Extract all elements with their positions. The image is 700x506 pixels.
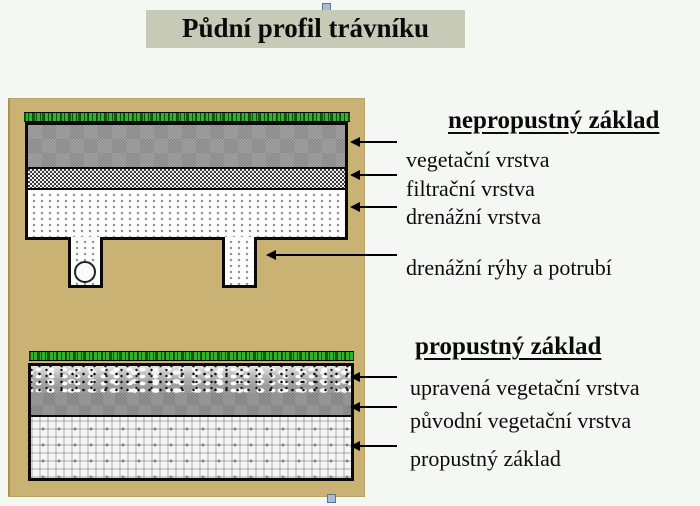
heading-permeable-base: propustný základ: [415, 333, 601, 361]
drainage-trench-right: [222, 237, 257, 288]
label-filtration-layer: filtrační vrstva: [406, 177, 535, 200]
grass-strip-bottom-diagram: [29, 351, 354, 361]
soil-stack-impermeable: [25, 122, 348, 240]
arrow-to-drainage-trench: [268, 254, 397, 256]
page-title: Půdní profil trávníku: [146, 10, 465, 48]
label-drainage-layer: drenážní vrstva: [406, 205, 541, 228]
arrow-to-permeable-base: [352, 445, 397, 447]
drainage-pipe-circle: [74, 261, 96, 283]
drainage-layer: [28, 190, 345, 237]
label-drainage-trenches-pipes: drenážní rýhy a potrubí: [406, 256, 612, 279]
slide-canvas: Půdní profil trávníku nepropustný základ…: [0, 0, 700, 506]
amended-vegetation-layer: [31, 366, 351, 393]
permeable-base-layer: [31, 417, 351, 478]
grass-strip-top-diagram: [24, 112, 350, 122]
selection-handle-bottom[interactable]: [327, 494, 336, 503]
arrow-to-filtration-layer: [352, 174, 397, 176]
original-vegetation-layer: [31, 393, 351, 417]
arrow-to-vegetation-layer: [352, 141, 397, 143]
label-amended-vegetation-layer: upravená vegetační vrstva: [410, 376, 640, 399]
label-original-vegetation-layer: původní vegetační vrstva: [410, 409, 631, 432]
arrow-to-original-vegetation-layer: [352, 406, 397, 408]
label-permeable-base: propustný základ: [410, 447, 561, 470]
arrow-to-drainage-layer: [352, 206, 397, 208]
filtration-layer: [28, 169, 345, 190]
heading-impermeable-base: nepropustný základ: [448, 107, 659, 135]
vegetation-layer: [28, 125, 345, 169]
soil-stack-permeable: [28, 363, 354, 481]
arrow-to-amended-vegetation-layer: [352, 376, 397, 378]
label-vegetation-layer: vegetační vrstva: [406, 148, 550, 171]
